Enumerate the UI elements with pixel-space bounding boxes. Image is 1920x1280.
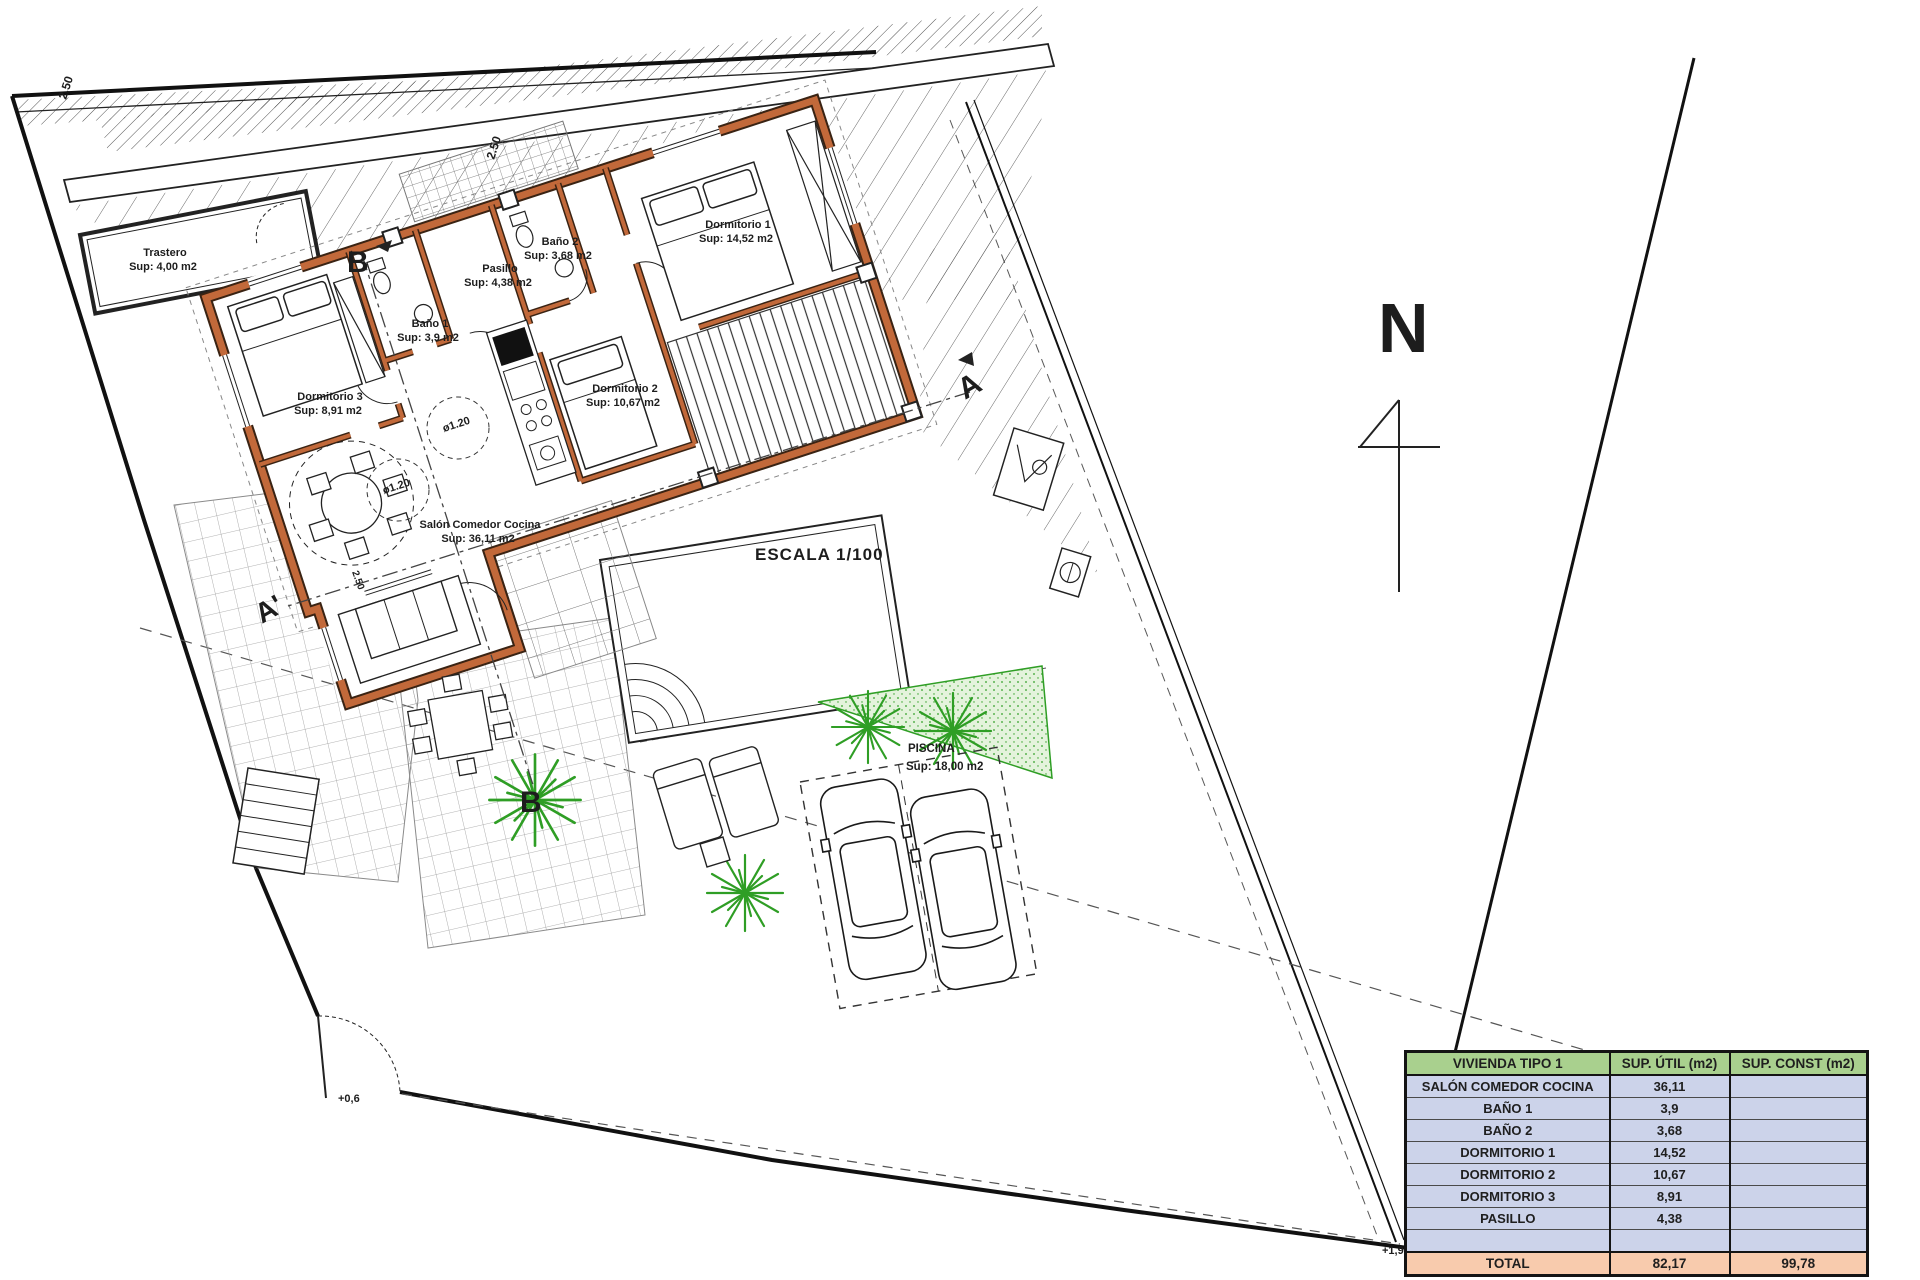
label-dorm3-area: Sup: 8,91 m2 xyxy=(294,405,362,417)
label-pasillo-area: Sup: 4,38 m2 xyxy=(464,277,532,289)
label-trastero-area: Sup: 4,00 m2 xyxy=(129,261,197,273)
label-dorm1-name: Dormitorio 1 xyxy=(705,219,770,231)
table-header-const: SUP. CONST (m2) xyxy=(1730,1052,1868,1076)
level-entrance: +0,6 xyxy=(338,1093,360,1105)
level-corner: +1,9 xyxy=(1382,1245,1404,1257)
label-dorm2-name: Dormitorio 2 xyxy=(592,383,657,395)
label-salon-name: Salón Comedor Cocina xyxy=(419,519,541,531)
table-row: BAÑO 23,68 xyxy=(1406,1120,1868,1142)
label-bano1-area: Sup: 3,9 m2 xyxy=(397,332,459,344)
scale-label: ESCALA 1/100 xyxy=(755,545,884,564)
label-bano2-area: Sup: 3,68 m2 xyxy=(524,250,592,262)
floor-plan-page: N Trastero Sup: 4,00 m2 Pasillo Sup: 4,3… xyxy=(0,0,1920,1280)
table-total-row: TOTAL82,1799,78 xyxy=(1406,1252,1868,1276)
label-dorm3-name: Dormitorio 3 xyxy=(297,391,362,403)
table-header-row: VIVIENDA TIPO 1 SUP. ÚTIL (m2) SUP. CONS… xyxy=(1406,1052,1868,1076)
label-dorm2-area: Sup: 10,67 m2 xyxy=(586,397,660,409)
table-row: DORMITORIO 210,67 xyxy=(1406,1164,1868,1186)
label-pasillo-name: Pasillo xyxy=(482,263,518,275)
exterior-stairs xyxy=(233,768,319,874)
table-row: DORMITORIO 38,91 xyxy=(1406,1186,1868,1208)
label-bano2-name: Baño 2 xyxy=(542,236,579,248)
label-piscina-area: Sup: 18,00 m2 xyxy=(906,761,983,773)
table-row: SALÓN COMEDOR COCINA36,11 xyxy=(1406,1075,1868,1098)
label-salon-area: Sup: 36,11 m2 xyxy=(441,533,514,545)
north-letter: N xyxy=(1378,289,1429,367)
label-trastero-name: Trastero xyxy=(143,247,187,259)
table-row-empty xyxy=(1406,1230,1868,1253)
label-bano1-name: Baño 1 xyxy=(412,318,449,330)
table-row: PASILLO4,38 xyxy=(1406,1208,1868,1230)
label-piscina-name: PISCINA xyxy=(908,743,955,755)
area-summary: VIVIENDA TIPO 1 SUP. ÚTIL (m2) SUP. CONS… xyxy=(1404,1050,1866,1277)
area-table: VIVIENDA TIPO 1 SUP. ÚTIL (m2) SUP. CONS… xyxy=(1404,1050,1869,1277)
table-row: DORMITORIO 114,52 xyxy=(1406,1142,1868,1164)
section-b-top: B xyxy=(347,246,369,279)
table-header-vivienda: VIVIENDA TIPO 1 xyxy=(1406,1052,1610,1076)
section-b-bottom: B xyxy=(520,786,542,819)
table-row: BAÑO 13,9 xyxy=(1406,1098,1868,1120)
label-dorm1-area: Sup: 14,52 m2 xyxy=(699,233,773,245)
table-header-util: SUP. ÚTIL (m2) xyxy=(1610,1052,1730,1076)
